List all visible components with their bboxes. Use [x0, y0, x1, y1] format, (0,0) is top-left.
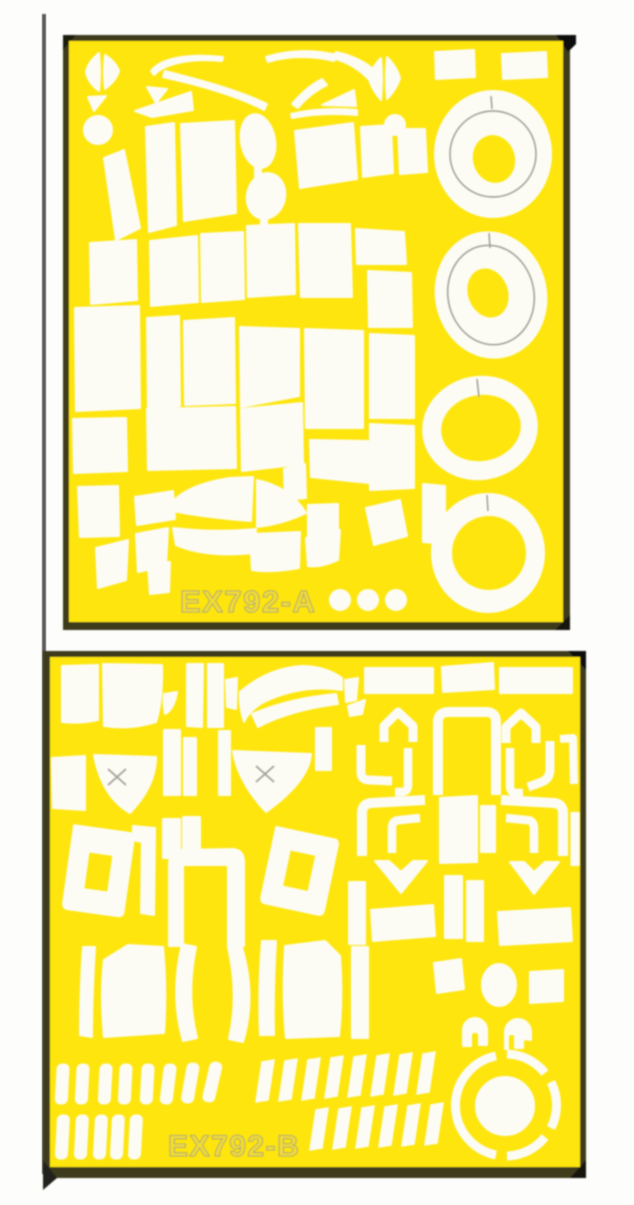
svg-text:EX792-A: EX792-A: [180, 584, 316, 619]
svg-text:EX792-B: EX792-B: [168, 1130, 300, 1163]
